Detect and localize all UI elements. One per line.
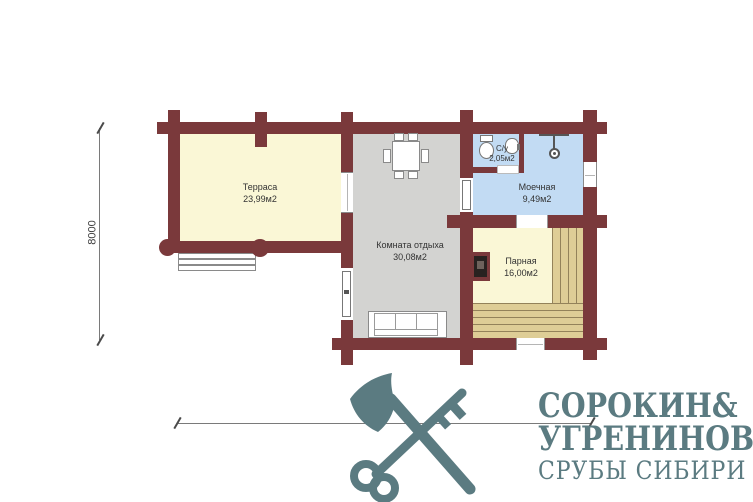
wall-top (157, 122, 607, 134)
steam-bench-bottom (473, 303, 583, 338)
chair (421, 149, 429, 163)
floorplan-page: Терраса 23,99м2 Комната отдыха 30,08м2 С… (0, 0, 753, 502)
chair (408, 171, 418, 179)
room-label-wc: С/у 2,05м2 (472, 144, 532, 165)
logo-name-line2: УГРЕНИНОВ (538, 422, 753, 456)
door-wc (497, 165, 519, 174)
entrance-door (341, 268, 353, 320)
window-terrace-lounge (341, 172, 353, 213)
room-name: Моечная (462, 182, 612, 194)
room-label-steam: Парная 16,00м2 (446, 256, 596, 280)
room-name: Комната отдыха (335, 240, 485, 252)
wall-wc-horizontal (473, 167, 497, 173)
dimension-tick (96, 122, 104, 134)
logo-tagline: СРУБЫ СИБИРИ (538, 458, 746, 483)
logo-ampersand: & (712, 389, 738, 423)
shower-head-dot (553, 152, 556, 155)
terrace-post (251, 239, 269, 257)
room-label-terrace: Терраса 23,99м2 (185, 182, 335, 206)
wall-left (168, 110, 180, 253)
chair (408, 133, 418, 141)
door-steam (516, 215, 548, 228)
room-area: 2,05м2 (472, 154, 532, 164)
dimension-tick (96, 334, 104, 346)
room-name: Терраса (185, 182, 335, 194)
room-area: 9,49м2 (462, 194, 612, 206)
sofa-back (374, 329, 438, 336)
room-name: Парная (446, 256, 596, 268)
logo-name-line1: СОРОКИН& (538, 389, 731, 423)
chair (394, 133, 404, 141)
door-leaf (342, 271, 351, 317)
dining-table (392, 141, 420, 171)
room-name: С/у (472, 144, 532, 154)
sofa-cushion (374, 313, 396, 330)
log-stub-top (255, 112, 267, 147)
room-area: 23,99м2 (185, 194, 335, 206)
step (178, 265, 256, 271)
logo-name1: СОРОКИН (538, 389, 712, 423)
door-handle (344, 290, 349, 294)
wall-right (583, 110, 597, 360)
logo-axe-key-icon (349, 373, 491, 502)
window-glass-line (347, 174, 348, 211)
shower-pipe (553, 135, 555, 149)
chair (383, 149, 391, 163)
dimension-label-vertical: 8000 (87, 213, 100, 253)
window-glass-line (585, 175, 595, 176)
sofa-cushion (395, 313, 417, 330)
sofa (368, 311, 447, 338)
wall-lounge-left (341, 112, 353, 365)
toilet-tank (480, 135, 493, 142)
room-area: 16,00м2 (446, 268, 596, 280)
shower-head (549, 148, 560, 159)
chair (394, 171, 404, 179)
vent-line (518, 344, 543, 345)
room-label-washroom: Моечная 9,49м2 (462, 182, 612, 206)
sofa-cushion (416, 313, 438, 330)
vent-bottom (516, 338, 545, 350)
